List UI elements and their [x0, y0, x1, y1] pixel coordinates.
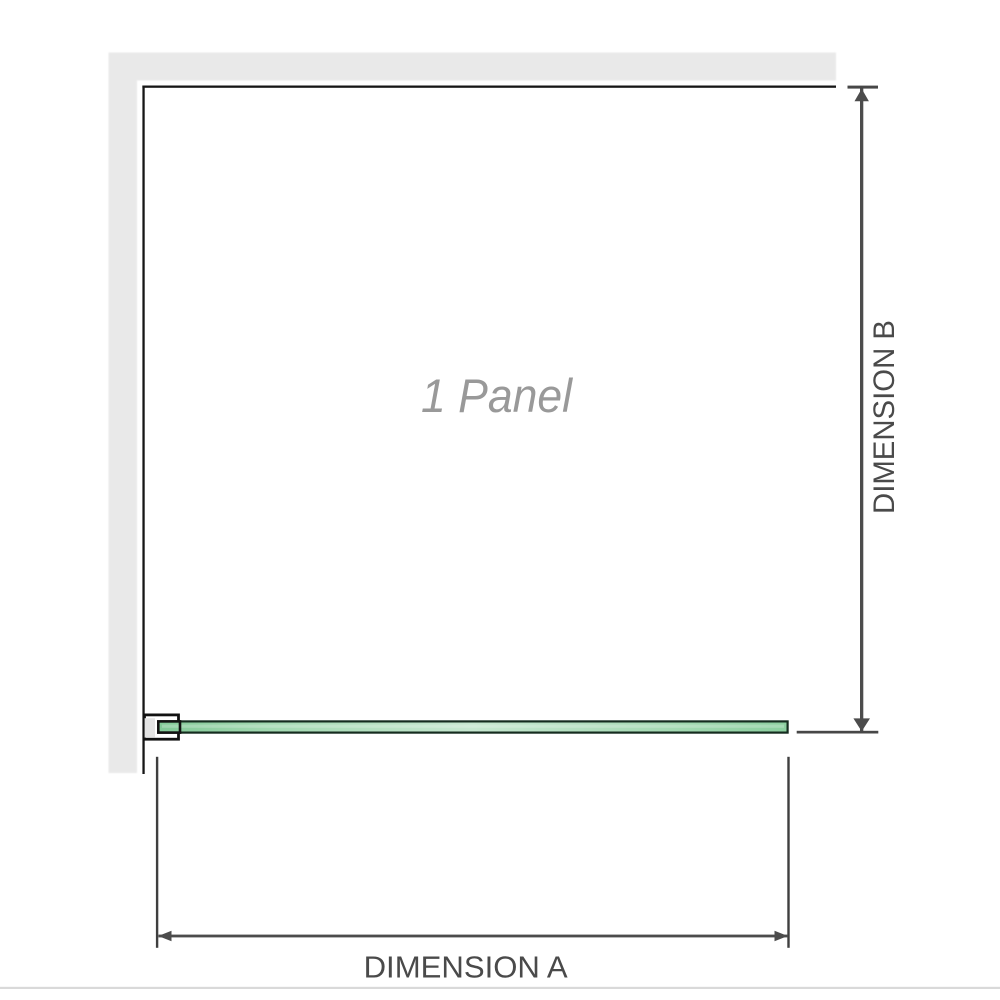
svg-text:DIMENSION B: DIMENSION B — [868, 320, 901, 514]
svg-text:1 Panel: 1 Panel — [421, 369, 573, 422]
svg-text:DIMENSION A: DIMENSION A — [364, 950, 568, 985]
